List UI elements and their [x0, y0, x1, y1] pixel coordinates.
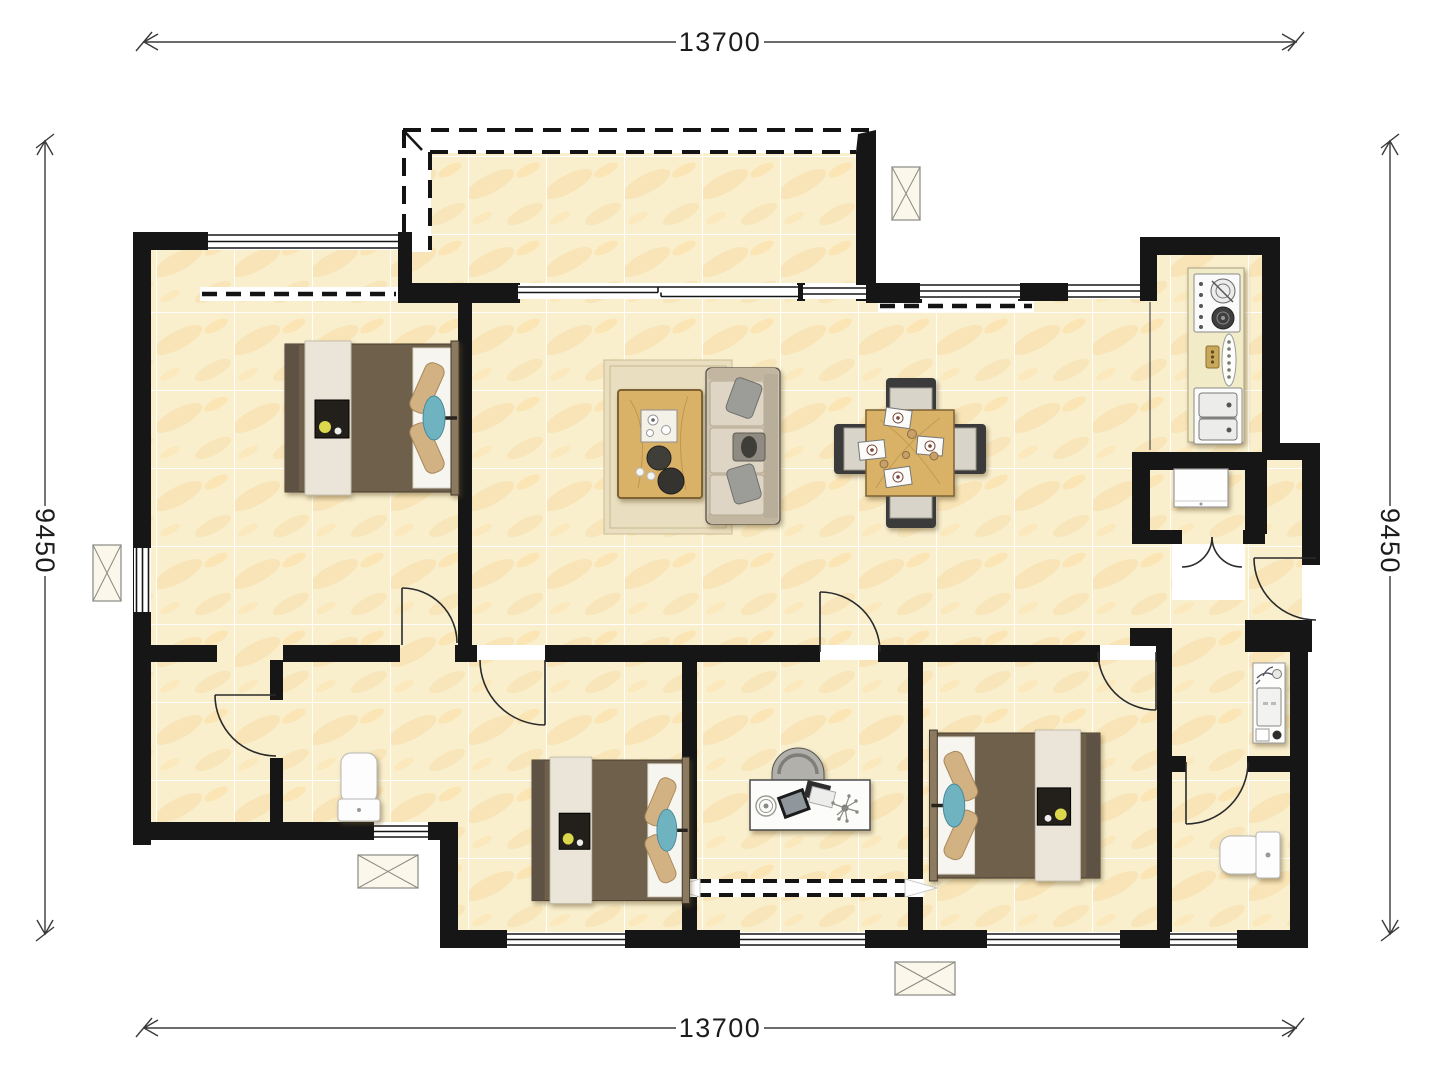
- sliding-window-balcony: [518, 285, 866, 299]
- window-dining-right: [1068, 283, 1140, 299]
- wall-entry-divider: [1245, 452, 1267, 534]
- wall-corridor-junction: [1130, 628, 1172, 646]
- wall-a-6: [878, 645, 1100, 662]
- x-shaft-icon-bottom-left: [358, 855, 418, 888]
- wall-balcony-wedge: [856, 130, 876, 301]
- window-bedroom2-bottom: [507, 932, 625, 947]
- living-room-set: [604, 360, 780, 534]
- wall-bottom-2: [625, 930, 740, 948]
- wall-entry-right: [1302, 443, 1320, 565]
- wall-dining-window-pier: [1018, 283, 1068, 301]
- kitchen-counter-icon: [1188, 268, 1244, 444]
- window-dining-left: [920, 283, 1020, 299]
- toilet-icon-bathroom: [1220, 832, 1280, 878]
- coffee-table-icon: [618, 390, 702, 498]
- sliding-opening-study: [668, 879, 937, 897]
- wall-wc-jamb-bottom: [270, 758, 283, 822]
- wall-a-2: [283, 645, 400, 662]
- wall-a-4: [545, 645, 684, 662]
- dimension-bottom-label: 13700: [679, 1013, 762, 1043]
- fridge-icon: [1174, 469, 1228, 507]
- desk-icon: [750, 780, 870, 830]
- wall-a-1: [133, 645, 217, 662]
- dimension-left-label: 9450: [30, 508, 60, 574]
- dimension-bottom: 13700: [136, 1013, 1304, 1043]
- dimension-left: 9450: [30, 134, 60, 941]
- bed-icon-bedroom1: [285, 341, 459, 495]
- wall-pantry-left: [1132, 452, 1150, 544]
- wall-bottom-3: [865, 930, 987, 948]
- wall-pantry-bottom-left: [1150, 530, 1182, 544]
- vanity-sink-icon: [1253, 663, 1285, 743]
- wall-a-5: [682, 645, 820, 662]
- wall-wc-bottom-right: [428, 822, 458, 840]
- balcony-floor: [412, 152, 856, 283]
- window-left-wall: [134, 548, 151, 612]
- dimension-right-label: 9450: [1375, 508, 1405, 574]
- window-study-bottom: [740, 932, 865, 947]
- sofa-icon: [706, 368, 780, 524]
- kitchen-sink-icon: [1194, 388, 1242, 444]
- wall-top-left-pier: [133, 232, 208, 250]
- floor-plan-page: 13700 13700 9450 9450: [0, 0, 1440, 1080]
- wall-wc-bottom-left: [133, 822, 374, 840]
- x-shaft-icon-bottom-center: [895, 962, 955, 995]
- wall-bed3-corridor: [1157, 645, 1172, 932]
- dimension-top-label: 13700: [679, 27, 762, 57]
- wall-bottom-1: [440, 930, 507, 948]
- window-bathroom-bottom: [1170, 932, 1237, 947]
- wall-bath-jamb-right: [1247, 756, 1290, 772]
- wall-kitchen-top: [1140, 237, 1280, 255]
- wall-left-outer: [133, 232, 151, 845]
- balcony-margin-top: [403, 130, 876, 153]
- window-bedroom1-top: [208, 233, 398, 250]
- wall-kitchen-bottom: [1132, 452, 1262, 470]
- wall-bottom-5: [1237, 930, 1308, 948]
- bed-icon-bedroom3: [929, 730, 1100, 881]
- wall-bedroom1-right: [458, 283, 472, 660]
- stove-icon: [1194, 274, 1240, 332]
- toilet-icon-wc: [338, 753, 380, 821]
- wall-wc-jamb-top: [270, 660, 283, 700]
- floor-plan-drawing: 13700 13700 9450 9450: [0, 0, 1440, 1080]
- tiled-floors: [151, 152, 1302, 932]
- dimension-top: 13700: [136, 27, 1304, 57]
- wall-bath-jamb-left: [1172, 756, 1186, 772]
- window-wc-bottom: [374, 824, 428, 839]
- wall-step-down: [440, 840, 458, 932]
- wall-bottom-4: [1120, 930, 1170, 948]
- x-shaft-icon-top-right: [892, 167, 920, 220]
- wc-floor: [151, 660, 458, 822]
- x-shaft-icon-left: [93, 545, 121, 601]
- living-dining-floor: [458, 299, 1172, 645]
- window-bedroom3-bottom: [987, 932, 1120, 947]
- dimension-right: 9450: [1375, 134, 1405, 941]
- bed-icon-bedroom2: [532, 757, 689, 903]
- wall-a-3: [455, 645, 477, 662]
- wall-bathroom-right: [1290, 645, 1308, 948]
- wall-kitchen-right: [1262, 237, 1280, 460]
